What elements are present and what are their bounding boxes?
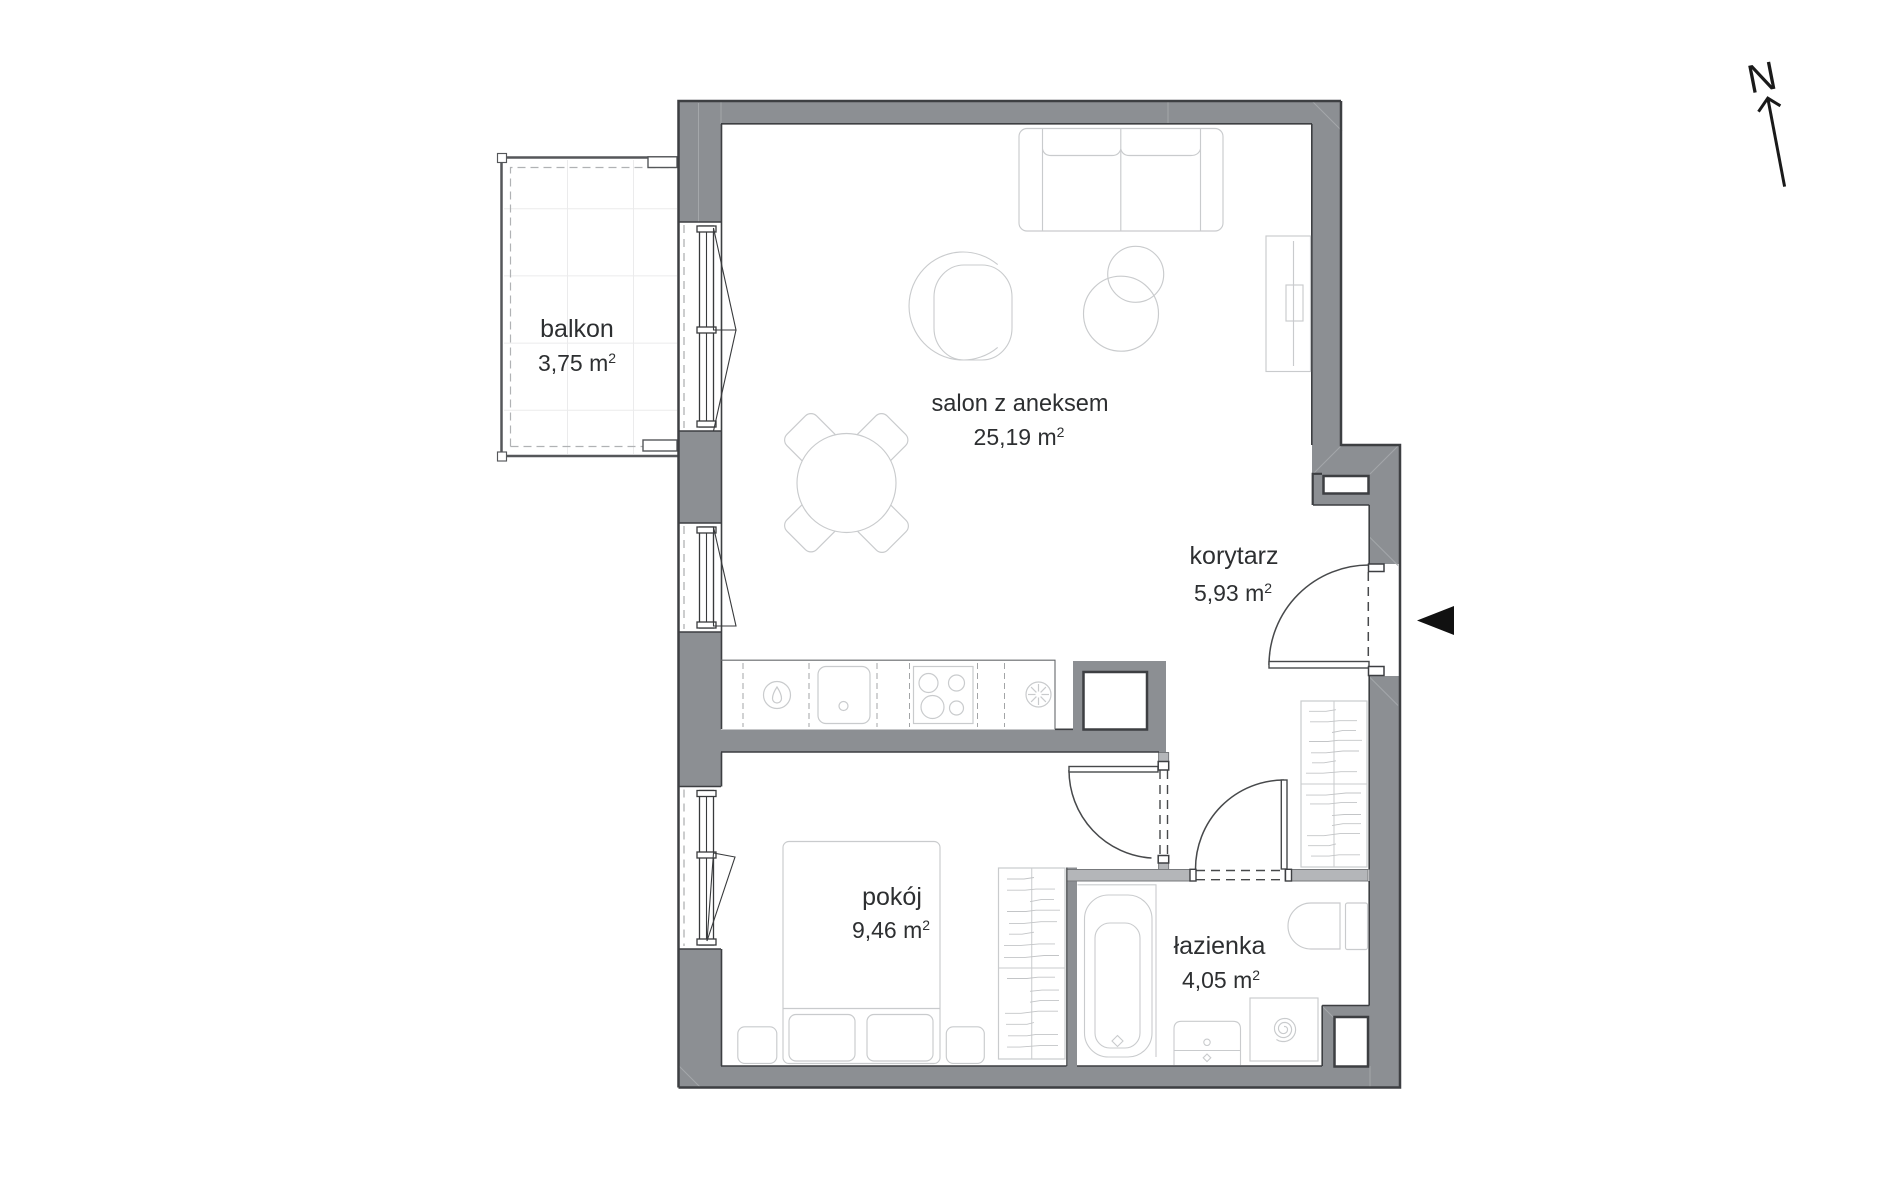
svg-text:3,75 m2: 3,75 m2 [538, 350, 616, 376]
svg-text:4,05 m2: 4,05 m2 [1182, 967, 1260, 993]
svg-text:N: N [1744, 54, 1781, 103]
svg-text:korytarz: korytarz [1190, 542, 1279, 570]
svg-text:5,93 m2: 5,93 m2 [1194, 580, 1272, 606]
svg-text:łazienka: łazienka [1174, 932, 1266, 960]
svg-text:salon z aneksem: salon z aneksem [931, 391, 1108, 417]
svg-text:9,46 m2: 9,46 m2 [852, 917, 930, 943]
svg-text:balkon: balkon [540, 315, 614, 343]
svg-text:25,19 m2: 25,19 m2 [974, 424, 1065, 450]
svg-text:pokój: pokój [862, 883, 922, 911]
